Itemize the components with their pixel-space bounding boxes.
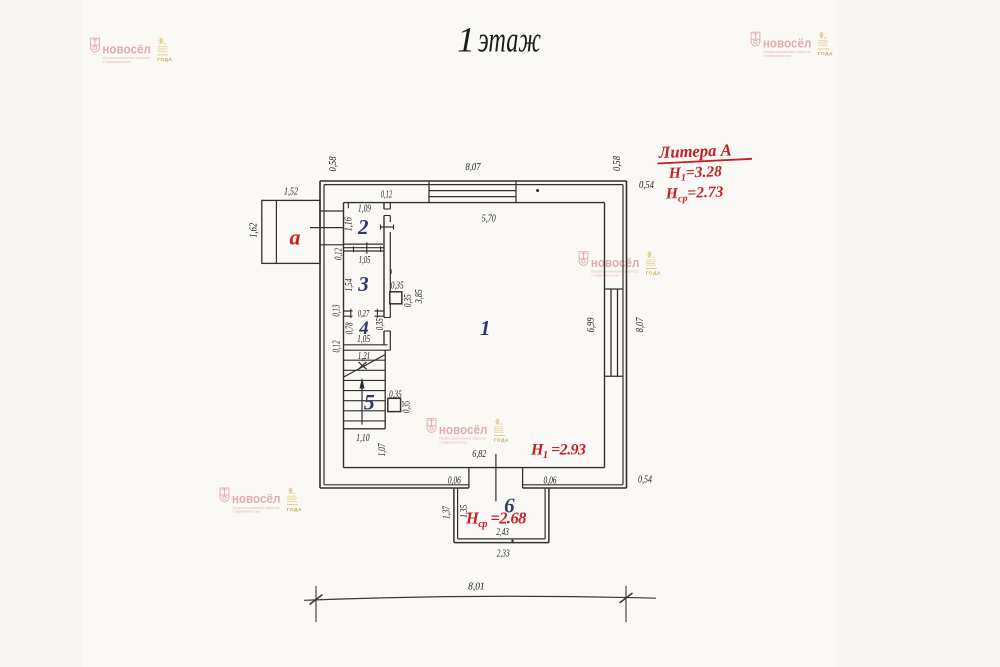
svg-text:8,07: 8,07 xyxy=(466,162,482,173)
svg-text:0,35: 0,35 xyxy=(401,401,412,414)
svg-text:1,10: 1,10 xyxy=(356,433,370,444)
svg-text:5,70: 5,70 xyxy=(482,214,496,225)
svg-text:2: 2 xyxy=(357,215,369,239)
svg-text:0,06: 0,06 xyxy=(448,475,461,486)
svg-text:Нср =2.68: Нср =2.68 xyxy=(465,509,526,531)
svg-text:5: 5 xyxy=(364,390,375,415)
svg-text:1,62: 1,62 xyxy=(249,223,260,238)
svg-text:2,43: 2,43 xyxy=(496,527,509,538)
svg-text:1,07: 1,07 xyxy=(377,443,388,457)
svg-text:0,35: 0,35 xyxy=(389,389,402,400)
svg-text:0,12: 0,12 xyxy=(334,248,345,260)
svg-text:1,09: 1,09 xyxy=(358,204,371,215)
svg-text:1: 1 xyxy=(480,316,491,340)
svg-text:1,52: 1,52 xyxy=(284,186,298,197)
svg-text:6,82: 6,82 xyxy=(472,449,486,460)
svg-text:0,35: 0,35 xyxy=(403,294,414,307)
svg-text:1: 1 xyxy=(457,20,475,60)
svg-text:1,37: 1,37 xyxy=(442,505,453,519)
svg-text:0,58: 0,58 xyxy=(328,157,339,172)
svg-text:0,78: 0,78 xyxy=(344,322,355,334)
svg-text:8,01: 8,01 xyxy=(468,581,485,592)
svg-text:0,12: 0,12 xyxy=(332,341,343,353)
svg-text:1,21: 1,21 xyxy=(358,351,371,362)
svg-text:1,54: 1,54 xyxy=(344,279,355,292)
svg-text:3,85: 3,85 xyxy=(414,289,425,304)
svg-text:0,35: 0,35 xyxy=(391,281,404,292)
svg-text:0,54: 0,54 xyxy=(638,475,652,486)
svg-text:Литера А: Литера А xyxy=(657,140,732,162)
svg-text:1,05: 1,05 xyxy=(359,255,371,266)
svg-text:2,33: 2,33 xyxy=(497,549,510,560)
svg-text:0,12: 0,12 xyxy=(381,190,393,201)
svg-text:0,58: 0,58 xyxy=(612,156,623,171)
svg-text:0,13: 0,13 xyxy=(332,305,343,317)
svg-text:а: а xyxy=(290,225,301,250)
svg-text:3: 3 xyxy=(357,272,369,296)
svg-text:0,06: 0,06 xyxy=(544,476,557,487)
svg-text:8,07: 8,07 xyxy=(635,317,646,333)
svg-text:Н1 =2.93: Н1 =2.93 xyxy=(530,442,586,462)
svg-text:4: 4 xyxy=(358,318,369,339)
svg-text:этаж: этаж xyxy=(478,20,541,60)
svg-text:0,54: 0,54 xyxy=(639,180,654,191)
svg-text:1,16: 1,16 xyxy=(344,217,355,231)
svg-text:6,99: 6,99 xyxy=(586,317,597,332)
svg-text:0,35: 0,35 xyxy=(375,318,386,330)
